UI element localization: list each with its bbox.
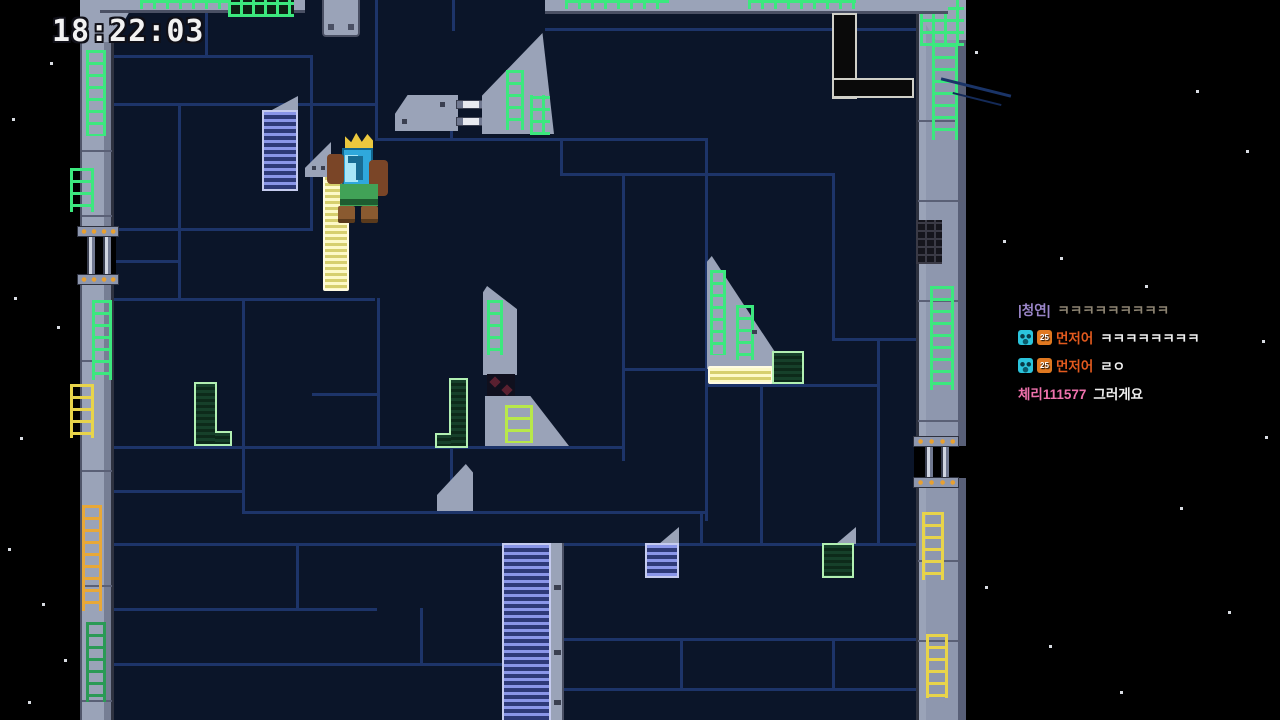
chat-username: 먼저어 — [1056, 355, 1093, 375]
wall-panel-line — [700, 511, 703, 543]
wall-panel-line — [112, 260, 180, 263]
stream-timer: 18:22:03 — [52, 14, 205, 49]
star-dot — [50, 62, 53, 65]
circuit-ladder — [70, 384, 94, 438]
circuit-ladder — [930, 286, 954, 390]
circuit-ladder — [926, 634, 948, 698]
green-square-platform — [772, 351, 804, 384]
wall-panel-line — [420, 608, 423, 666]
player-arm — [327, 154, 344, 184]
star-dot — [20, 437, 23, 440]
rivet — [440, 102, 445, 107]
bolt-plate — [913, 436, 959, 447]
wall-panel-line — [296, 543, 299, 611]
wall-panel-line — [560, 138, 563, 176]
bolt-plate — [77, 226, 119, 237]
circuit-ladder — [487, 300, 503, 355]
wall-panel-line — [178, 103, 181, 301]
star-dot — [14, 297, 17, 300]
green-l-foot — [215, 431, 232, 446]
chat-text: 그러게요 — [1093, 383, 1143, 403]
wall-seam — [82, 150, 112, 152]
blue-striped-platform — [262, 110, 298, 191]
wall-seam — [82, 470, 112, 472]
chat-message: |청연| ㅋㅋㅋㅋㅋㅋㅋㅋㅋ — [1018, 299, 1200, 319]
chat-text: ㄹㅇ — [1100, 355, 1125, 375]
wall-panel-line — [560, 173, 834, 176]
circuit-ladder — [710, 270, 726, 355]
star-dot — [1003, 240, 1006, 243]
star-dot — [975, 51, 978, 54]
wall-panel-line — [375, 138, 707, 141]
circuit-ladder — [506, 70, 524, 130]
player-boot — [338, 206, 355, 223]
chat-message: 체리111577 그러게요 — [1018, 383, 1200, 403]
circuit-ladder — [505, 405, 533, 443]
game-screen: 18:22:03 |청연| ㅋㅋㅋㅋㅋㅋㅋㅋㅋ 25 먼저어 ㅋㅋㅋㅋㅋㅋㅋㅋ … — [0, 0, 1280, 720]
wall-panel-line — [832, 173, 835, 341]
hanging-grid — [228, 0, 294, 17]
bolt-plate — [913, 477, 959, 488]
circuit-ladder — [92, 300, 112, 380]
wall-seam — [82, 215, 112, 217]
star-dot — [64, 659, 67, 662]
circuit-ladder — [86, 50, 106, 136]
rivet — [554, 650, 561, 655]
green-j-platform — [449, 378, 468, 448]
wall-panel-line — [680, 638, 683, 691]
piston-rod — [941, 446, 949, 478]
wall-panel-line — [705, 384, 877, 387]
chat-text: ㅋㅋㅋㅋㅋㅋㅋㅋㅋ — [1057, 299, 1169, 319]
wall-panel-line — [112, 103, 375, 106]
rivet — [348, 24, 354, 30]
wall-panel-line — [877, 338, 880, 546]
circuit-grid — [530, 95, 550, 135]
chat-username: 먼저어 — [1056, 327, 1093, 347]
wall-panel-line — [545, 28, 918, 31]
star-dot — [1246, 150, 1249, 153]
star-dot — [1180, 507, 1183, 510]
star-dot — [1265, 436, 1268, 439]
wall-panel-line — [112, 446, 622, 449]
wall-panel-line — [112, 228, 310, 231]
wall-panel-line — [834, 338, 918, 341]
star-dot — [42, 603, 45, 606]
wall-panel-line — [560, 638, 918, 641]
rivet — [554, 700, 561, 705]
wall-panel-line — [622, 368, 707, 371]
star-dot — [1145, 285, 1148, 288]
wall-panel-line — [832, 638, 835, 691]
player-boot — [361, 206, 378, 223]
star-dot — [1196, 90, 1199, 93]
piston-rod — [103, 236, 111, 276]
wall-panel-line — [622, 173, 625, 461]
wall-panel-line — [310, 55, 313, 231]
wall-panel-line — [242, 511, 707, 514]
star-dot — [12, 118, 15, 121]
subscriber-badge-icon — [1018, 330, 1033, 345]
wall-panel-line — [112, 55, 310, 58]
green-l-platform — [194, 382, 217, 446]
rivet — [752, 330, 757, 334]
wall-panel-line — [205, 12, 208, 58]
wall-panel-line — [452, 0, 455, 31]
wall-panel-line — [112, 490, 242, 493]
star-dot — [985, 586, 988, 589]
beam-railing — [748, 0, 856, 9]
circuit-ladder — [70, 168, 94, 212]
wall-panel-line — [377, 298, 380, 448]
chat-message: 25 먼저어 ㅋㅋㅋㅋㅋㅋㅋㅋ — [1018, 327, 1200, 347]
star-dot — [1120, 691, 1123, 694]
bottom-column-rail — [551, 543, 564, 720]
star-dot — [8, 548, 11, 551]
star-dot — [1049, 645, 1052, 648]
level-25-badge-icon: 25 — [1037, 358, 1052, 373]
yellow-ledge-platform — [708, 366, 773, 384]
piston-rod — [925, 446, 933, 478]
bottom-column — [502, 543, 551, 720]
star-dot — [1060, 257, 1063, 260]
circuit-ladder — [922, 512, 944, 580]
wall-panel-line — [312, 393, 377, 396]
star-dot — [1228, 611, 1231, 614]
wall-panel-line — [375, 0, 378, 141]
chat-username: |청연| — [1018, 299, 1050, 319]
beam-railing — [565, 0, 669, 9]
bolt-plate — [77, 274, 119, 285]
circuit-ladder — [86, 622, 106, 702]
bracket-platform — [395, 95, 458, 131]
star-dot — [57, 326, 60, 329]
level-25-badge-icon: 25 — [1037, 330, 1052, 345]
rivet — [321, 166, 325, 170]
wall-panel-line — [112, 663, 562, 666]
star-dot — [1262, 340, 1265, 343]
pipe-joint-patch — [836, 80, 853, 96]
wall-seam — [918, 420, 964, 422]
chat-username: 체리111577 — [1018, 383, 1086, 403]
wall-panel-line — [242, 298, 245, 513]
star-dot — [28, 701, 31, 704]
chat-message: 25 먼저어 ㄹㅇ — [1018, 355, 1200, 375]
green-j-foot — [435, 433, 451, 448]
blue-square-platform — [645, 543, 679, 578]
brick-patch — [916, 220, 942, 264]
piston-rod — [87, 236, 95, 276]
rivet — [402, 119, 407, 124]
wall-panel-line — [760, 384, 763, 545]
chat-text: ㅋㅋㅋㅋㅋㅋㅋㅋ — [1100, 327, 1199, 347]
wall-seam — [918, 200, 964, 202]
subscriber-badge-icon — [1018, 358, 1033, 373]
dark-connector — [487, 374, 515, 398]
wall-panel-line — [560, 688, 918, 691]
top-pillar-stub — [322, 0, 360, 37]
rivet — [312, 166, 316, 170]
player-belt — [340, 199, 378, 205]
rivet — [328, 24, 334, 30]
rivet — [554, 585, 561, 590]
circuit-ladder — [82, 505, 102, 611]
chat-overlay: |청연| ㅋㅋㅋㅋㅋㅋㅋㅋㅋ 25 먼저어 ㅋㅋㅋㅋㅋㅋㅋㅋ 25 먼저어 ㄹㅇ… — [1018, 299, 1200, 403]
player-visor — [356, 156, 363, 180]
green-square-platform — [822, 543, 854, 578]
wall-panel-line — [112, 608, 377, 611]
